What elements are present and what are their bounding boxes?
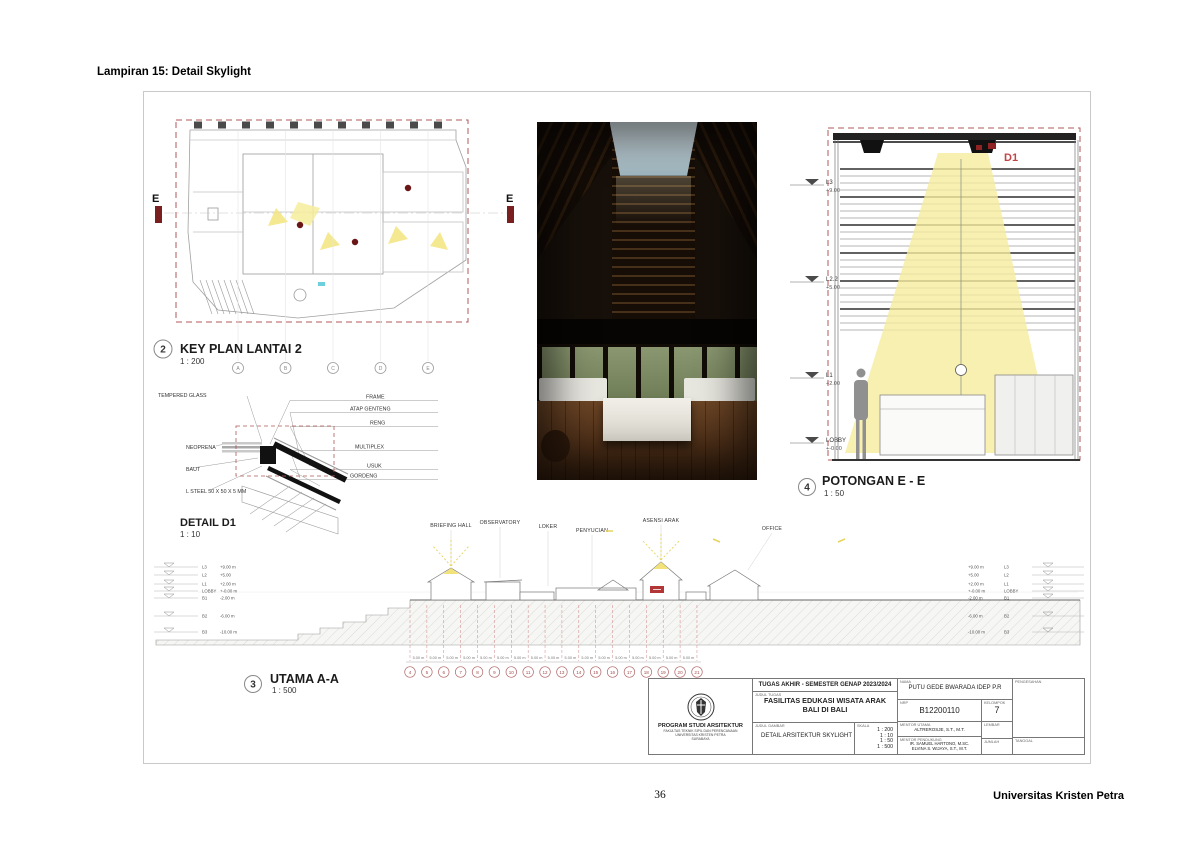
pengesahan-label: PENGESAHAN <box>1013 679 1084 684</box>
dimension-label: 5.00 m <box>649 656 661 660</box>
keyplan-linework <box>188 130 466 318</box>
roof-structure <box>833 133 1076 153</box>
level-elevation: -10.00 m <box>968 630 985 635</box>
utama-scale: 1 : 500 <box>272 686 297 695</box>
level-elevation: +5.00 <box>968 573 979 578</box>
dimension-label: 5.00 m <box>480 656 492 660</box>
vignette <box>537 122 757 480</box>
utama-levels-left: L3+9.00 mL2+5.00L1+2.00 mLOBBY+-0.00 mB1… <box>154 563 237 635</box>
course-header: TUGAS AKHIR - SEMESTER GENAP 2023/2024 <box>753 679 897 692</box>
page-number: 36 <box>600 789 720 801</box>
level-elevation: -6.00 m <box>220 614 235 619</box>
keyplan-scale: 1 : 200 <box>180 357 205 366</box>
grid-bubble-label: 17 <box>627 670 633 675</box>
cyan-element <box>318 282 325 286</box>
interior-render-photo <box>537 122 757 480</box>
level-elevation: -2.00 m <box>220 596 235 601</box>
detail-assembly <box>222 438 348 510</box>
utama-dimensions: 5.00 m5.00 m5.00 m5.00 m5.00 m5.00 m5.00… <box>406 656 701 662</box>
dimension-label: 5.00 m <box>581 656 593 660</box>
potongan-ee-drawing: L3+9.00L2.2+5.00L1+2.00LOBBY+-0.00 D1 4 … <box>788 123 1088 501</box>
dimension-label: 5.00 m <box>548 656 560 660</box>
level-name: LOBBY <box>202 589 216 594</box>
nama-cell: NAMA PUTU GEDE BWARADA IDEP P.R <box>898 679 1012 700</box>
dimension-label: 5.00 m <box>565 656 577 660</box>
level-elevation: -10.00 m <box>220 630 237 635</box>
level-elevation: +2.00 m <box>968 582 984 587</box>
keyplan-title: KEY PLAN LANTAI 2 <box>180 342 302 356</box>
detail-label-reng: RENG <box>370 421 385 427</box>
utama-title: UTAMA A-A <box>270 672 339 686</box>
utama-aa-drawing: BRIEFING HALL OBSERVATORY LOKER PENYUCIA… <box>148 512 1093 697</box>
grid-bubble-label: 6 <box>442 670 445 675</box>
level-name: L1 <box>1004 582 1009 587</box>
level-name: L3 <box>202 565 207 570</box>
section-flag-right <box>507 206 514 223</box>
university-logo <box>686 692 716 722</box>
red-signage <box>650 586 664 593</box>
detail-label-baut: BAUT <box>186 467 201 473</box>
grid-bubble-label: 7 <box>459 670 462 675</box>
footer-institution: Universitas Kristen Petra <box>993 790 1124 802</box>
detail-label-frame: FRAME <box>366 395 385 401</box>
dimension-label: 5.00 m <box>632 656 644 660</box>
detail-label-neoprena: NEOPRENA <box>186 445 216 451</box>
level-elevation: +-0.00 m <box>220 589 237 594</box>
detail-label-lsteel: L STEEL 50 X 50 X 5 MM <box>186 489 246 495</box>
grid-bubble-label: 10 <box>509 670 515 675</box>
section-flag-left <box>155 206 162 223</box>
dimension-label: 5.00 m <box>463 656 475 660</box>
level-name: B1 <box>202 596 208 601</box>
judul-gambar-cell: JUDUL GAMBAR DETAIL ARSITEKTUR SKYLIGHT <box>753 723 855 754</box>
level-name: L2 <box>202 573 207 578</box>
potongan-levels: L3+9.00L2.2+5.00L1+2.00LOBBY+-0.00 <box>790 179 846 452</box>
tanggal-label: TANGGAL <box>1013 738 1084 743</box>
room-label-asensi-arak: ASENSI ARAK <box>643 518 680 524</box>
room-label-observatory: OBSERVATORY <box>480 520 521 526</box>
grid-bubble-label: D <box>379 366 383 372</box>
room-label-office: OFFICE <box>762 526 783 532</box>
level-elevation: +5.00 <box>220 573 231 578</box>
level-name: L1 <box>826 373 833 379</box>
skala-cell: SKALA 1 : 200 1 : 10 1 : 50 1 : 500 <box>855 723 897 754</box>
drawing-number: 3 <box>250 680 256 691</box>
grid-bubble-label: 15 <box>593 670 599 675</box>
grid-bubble-label: 18 <box>644 670 650 675</box>
level-name: L1 <box>202 582 207 587</box>
scale-value-4: 1 : 500 <box>855 745 897 751</box>
grid-bubble-label: 21 <box>694 670 700 675</box>
level-elevation: +-0.00 m <box>968 589 985 594</box>
grid-bubble-label: 5 <box>426 670 429 675</box>
ground-terrain <box>156 600 1080 645</box>
level-name: LOBBY <box>1004 589 1018 594</box>
section-marker-left: E <box>152 193 159 205</box>
grid-bubble-label: 9 <box>493 670 496 675</box>
section-extent-dashed <box>176 120 468 322</box>
student-name: PUTU GEDE BWARADA IDEP P.R <box>898 684 1012 691</box>
grid-bubble-label: 11 <box>526 670 531 675</box>
jumlah-label: JUMLAH <box>982 739 1012 744</box>
appendix-heading: Lampiran 15: Detail Skylight <box>97 66 251 78</box>
title-block-logo-cell: PROGRAM STUDI ARSITEKTUR FAKULTAS TEKNIK… <box>649 679 753 754</box>
grid-bubble-label: 20 <box>678 670 684 675</box>
dimension-label: 5.00 m <box>615 656 627 660</box>
level-elevation: -6.00 m <box>968 614 983 619</box>
mentor-pendukung-cell: MENTOR PENDUKUNG IR. SAMUEL HARTONO, M.S… <box>898 737 981 754</box>
detail-label-usuk: USUK <box>367 464 382 470</box>
dimension-label: 5.00 m <box>446 656 458 660</box>
project-title-line2: BALI DI BALI <box>753 706 897 715</box>
buildings <box>428 562 760 600</box>
judul-tugas-cell: JUDUL TUGAS FASILITAS EDUKASI WISATA ARA… <box>753 692 897 723</box>
keyplan-drawing: E E ABCDE 2 KEY PLAN LANTAI 2 1 : 200 <box>148 112 528 380</box>
dimension-label: 5.00 m <box>666 656 678 660</box>
detail-label-atap-genteng: ATAP GENTENG <box>350 407 391 413</box>
level-elevation: +2.00 m <box>220 582 236 587</box>
dimension-label: 5.00 m <box>514 656 526 660</box>
yellow-marks <box>606 531 845 542</box>
grid-bubbles-row: ABCDE <box>233 130 434 374</box>
room-label-loker: LOKER <box>539 524 558 530</box>
mentor-utama-cell: MENTOR UTAMA ALTREROSJE, S.T., M.T. <box>898 722 981 737</box>
level-name: B1 <box>1004 596 1010 601</box>
detail-label-tempered-glass: TEMPERED GLASS <box>158 393 207 399</box>
level-name: B3 <box>1004 630 1010 635</box>
tanggal-cell: TANGGAL <box>1013 738 1084 754</box>
pengesahan-cell: PENGESAHAN <box>1013 679 1084 738</box>
room-label-briefing-hall: BRIEFING HALL <box>430 523 472 529</box>
level-elevation: +9.00 m <box>968 565 984 570</box>
dimension-label: 5.00 m <box>497 656 509 660</box>
level-name: LOBBY <box>826 438 846 444</box>
lembar-label: LEMBAR <box>982 722 1012 727</box>
stairs-hatch <box>200 280 254 314</box>
fixture-symbol <box>956 365 967 376</box>
nrp-cell: NRP B12200110 <box>898 700 982 721</box>
section-marker-right: E <box>506 193 513 205</box>
room-label-penyucian: PENYUCIAN <box>576 528 608 534</box>
jumlah-cell: JUMLAH <box>982 739 1012 755</box>
drawing-number: 4 <box>804 483 810 494</box>
institution-city: SURABAYA <box>692 737 710 741</box>
main-mentor-name: ALTREROSJE, S.T., M.T. <box>898 727 981 732</box>
grid-bubble-label: 13 <box>559 670 565 675</box>
level-name: L3 <box>1004 565 1009 570</box>
level-name: B2 <box>202 614 208 619</box>
level-name: L2 <box>1004 573 1009 578</box>
dimension-label: 5.00 m <box>598 656 610 660</box>
group-number: 7 <box>982 705 1012 715</box>
detail-label-multiplex: MULTIPLEX <box>355 445 385 451</box>
title-block: PROGRAM STUDI ARSITEKTUR FAKULTAS TEKNIK… <box>648 678 1085 755</box>
level-elevation: -2.00 m <box>968 596 983 601</box>
grid-bubble-label: 16 <box>610 670 616 675</box>
level-name: L3 <box>826 180 833 186</box>
grid-bubble-label: 12 <box>542 670 548 675</box>
grid-bubble-label: C <box>331 366 335 372</box>
kelompok-cell: KELOMPOK 7 <box>982 700 1012 721</box>
drawing-number: 2 <box>160 345 166 356</box>
level-elevation: +9.00 m <box>220 565 236 570</box>
potongan-title: POTONGAN E - E <box>822 474 925 488</box>
sheet-title: DETAIL ARSITEKTUR SKYLIGHT <box>753 728 854 739</box>
support-mentor-2: ELVINA S. WIJAYA, S.T., M.T. <box>898 747 981 752</box>
skylight-rays <box>433 534 680 566</box>
potongan-scale: 1 : 50 <box>824 489 845 498</box>
detail-ref-label: D1 <box>1004 152 1018 164</box>
detail-label-gording: GORDENG <box>350 474 377 480</box>
grid-bubble-label: 8 <box>476 670 479 675</box>
level-name: B2 <box>1004 614 1010 619</box>
dimension-label: 5.00 m <box>413 656 425 660</box>
level-name: B3 <box>202 630 208 635</box>
dimension-label: 5.00 m <box>683 656 695 660</box>
grid-bubble-label: 19 <box>661 670 667 675</box>
dimension-label: 5.00 m <box>531 656 543 660</box>
dimension-label: 5.00 m <box>430 656 442 660</box>
lembar-cell: LEMBAR <box>982 722 1012 739</box>
grid-bubble-label: 4 <box>409 670 412 675</box>
student-id: B12200110 <box>898 705 981 715</box>
grid-bubble-label: 14 <box>576 670 582 675</box>
